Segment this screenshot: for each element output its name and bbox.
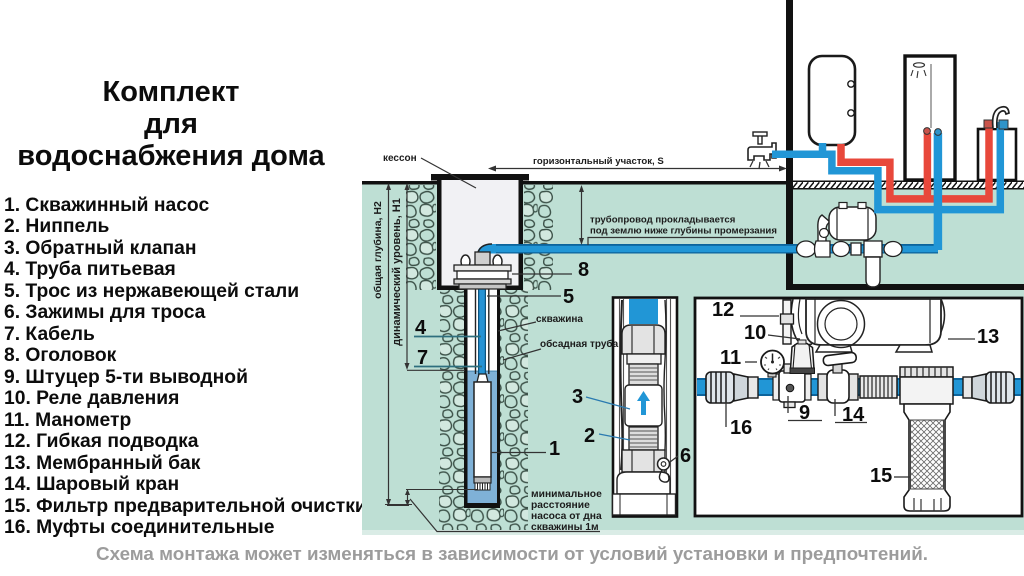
svg-text:скважина: скважина <box>536 314 583 325</box>
svg-text:трубопровод прокладывается: трубопровод прокладывается <box>590 215 735 226</box>
svg-text:общая глубина, Н2: общая глубина, Н2 <box>372 201 384 299</box>
svg-text:расстояние: расстояние <box>531 500 590 511</box>
svg-text:10: 10 <box>744 322 766 344</box>
svg-text:5: 5 <box>563 286 574 308</box>
svg-text:16: 16 <box>730 417 752 439</box>
svg-text:1: 1 <box>549 438 560 460</box>
svg-text:9: 9 <box>799 402 810 424</box>
svg-text:минимальное: минимальное <box>531 489 602 500</box>
svg-text:15: 15 <box>870 465 892 487</box>
svg-text:11: 11 <box>720 347 741 369</box>
svg-text:8: 8 <box>578 259 589 281</box>
svg-text:динамический уровень, Н1: динамический уровень, Н1 <box>391 198 403 346</box>
svg-text:13: 13 <box>977 326 999 348</box>
svg-text:под землю ниже глубины промерз: под землю ниже глубины промерзания <box>590 226 777 237</box>
svg-text:2: 2 <box>584 425 595 447</box>
svg-text:насоса от дна: насоса от дна <box>531 511 602 522</box>
svg-text:12: 12 <box>712 299 734 321</box>
svg-text:6: 6 <box>680 445 691 467</box>
svg-text:кессон: кессон <box>383 153 417 164</box>
svg-text:горизонтальный участок, S: горизонтальный участок, S <box>533 156 664 167</box>
svg-text:3: 3 <box>572 386 583 408</box>
svg-text:14: 14 <box>842 404 865 426</box>
svg-text:обсадная труба: обсадная труба <box>540 338 619 350</box>
